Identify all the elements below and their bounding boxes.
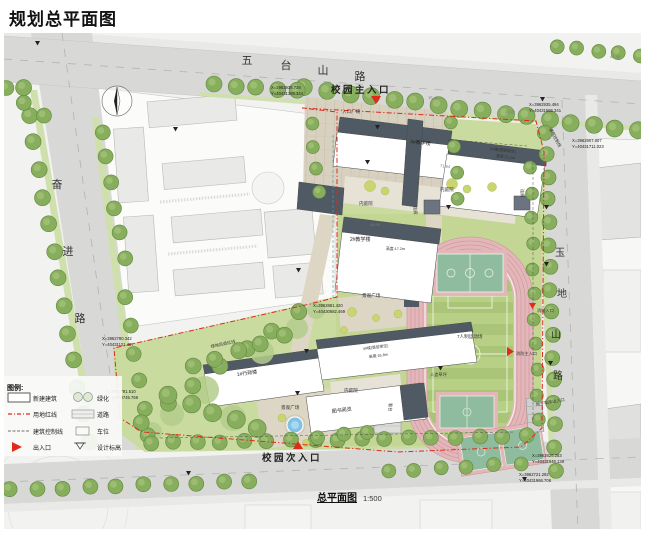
fire-main-entrance-label: 消防主入口: [516, 350, 537, 357]
coord-0b: Y=40431369.344: [271, 91, 304, 96]
playground-circle: [252, 172, 284, 204]
road-label-left-2: 进: [63, 245, 74, 258]
bush-icon: [373, 315, 380, 322]
grandstand-label: 看台: [387, 403, 394, 411]
coord-5a: X=3962721.292: [519, 472, 549, 477]
legend-elevation-label: 设计标高: [97, 444, 121, 452]
bush-icon: [394, 310, 402, 318]
drawing-caption: 总平面图: [317, 491, 357, 504]
legend-new-building-label: 新建建筑: [33, 395, 57, 403]
road-label-right-3: 山: [551, 329, 561, 341]
site-plan-drawing: 五 台 山 路 奋 进 路 玉 地 山 路 校园主入口 校园次入口 消防主入口 …: [0, 0, 645, 537]
coord-1b: Y=40431566.341: [529, 108, 562, 113]
coord-3a: X=3962881.420: [313, 303, 343, 308]
north-arrow-icon: [102, 86, 132, 116]
coord-6a: X=3962780.342: [102, 336, 132, 341]
bush-icon: [348, 308, 357, 317]
site-plan-page: 规划总平面图: [0, 0, 645, 537]
fire-side-entrance-label: 消防入口: [537, 307, 554, 314]
bush-icon: [381, 187, 389, 195]
corridor-label-2: 连廊: [412, 206, 419, 214]
dim-3: 58.40: [370, 222, 381, 227]
road-label-top-2: 台: [281, 58, 292, 72]
legend: 图例: 新建建筑 用地红线 建筑控制线 出入口 绿化 道路 车位: [4, 376, 122, 456]
landscape-plaza-label-1: 景观广场: [281, 404, 300, 411]
coord-4b: Y=40431946.139: [532, 459, 565, 464]
road-label-right-2: 地: [557, 287, 567, 300]
legend-greenery-symbol-2: [84, 393, 93, 402]
bush-icon: [303, 440, 310, 447]
legend-parking-label: 车位: [97, 428, 109, 436]
coord-3b: Y=40430682.469: [313, 309, 346, 314]
road-label-top-4: 路: [355, 70, 366, 83]
courtyard-label-1: 内庭院: [440, 186, 454, 193]
coord-2b: Y=40431711.023: [572, 144, 604, 149]
legend-greenery-label: 绿化: [97, 395, 109, 403]
bush-icon: [341, 327, 348, 334]
corridor-link-1: [424, 200, 440, 214]
library-dark-wing: [400, 383, 428, 420]
drawing-scale: 1:500: [363, 494, 382, 503]
legend-control-line-label: 建筑控制线: [33, 428, 63, 436]
secondary-entrance-label: 校园次入口: [262, 452, 322, 464]
coord-4a: X=3962826.283: [532, 453, 562, 458]
turf-label: 人造草坪: [430, 371, 447, 378]
building-2-label: 2#教学楼: [350, 236, 371, 243]
legend-greenery-symbol: [74, 393, 83, 402]
landscape-plaza-label-2: 景观广场: [362, 292, 381, 299]
road-label-top-3: 山: [318, 64, 329, 77]
page-title: 规划总平面图: [9, 5, 117, 30]
fountain: [285, 415, 305, 435]
road-label-right-1: 玉: [555, 248, 565, 259]
dim-0: 15.41: [428, 95, 439, 101]
legend-entrance-label: 出入口: [33, 444, 51, 452]
bush-icon: [365, 181, 376, 192]
bush-icon: [278, 414, 286, 422]
bush-icon: [463, 185, 471, 193]
field-label: 7人制运动场: [457, 333, 483, 340]
road-label-right-4: 路: [553, 369, 563, 382]
coord-5b: Y=40431966.706: [519, 478, 552, 483]
legend-title: 图例:: [7, 383, 23, 392]
map-area: 五 台 山 路 奋 进 路 玉 地 山 路 校园主入口 校园次入口 消防主入口 …: [0, 28, 645, 537]
coord-6b: Y=40431121.407: [102, 342, 134, 347]
courtyard-label-3: 内庭院: [344, 387, 358, 394]
legend-red-line-label: 用地红线: [33, 411, 57, 419]
road-label-top-1: 五: [242, 55, 253, 67]
bush-icon: [488, 183, 497, 192]
building-2-height: 高度:17.2m: [386, 246, 405, 251]
dim-1: 13.37: [505, 109, 516, 115]
road-label-left-1: 奋: [52, 177, 63, 191]
basketball-court-south: [440, 396, 494, 428]
coord-1a: X=3962935.494: [529, 102, 559, 107]
legend-road-label: 道路: [97, 411, 109, 419]
dim-4: 41.43: [610, 54, 621, 60]
coord-0a: X=3962938.738: [271, 85, 301, 90]
coord-2a: X=3962907.007: [572, 138, 602, 143]
legend-new-building-symbol: [8, 393, 30, 402]
corridor-label-1: 连廊: [519, 189, 526, 197]
main-entrance-label: 校园主入口: [331, 84, 391, 96]
entry-plaza-label: 入口广场: [342, 108, 361, 115]
courtyard-label-2: 内庭院: [359, 200, 373, 207]
basketball-court-north: [437, 254, 503, 292]
road-label-left-3: 路: [75, 312, 86, 325]
